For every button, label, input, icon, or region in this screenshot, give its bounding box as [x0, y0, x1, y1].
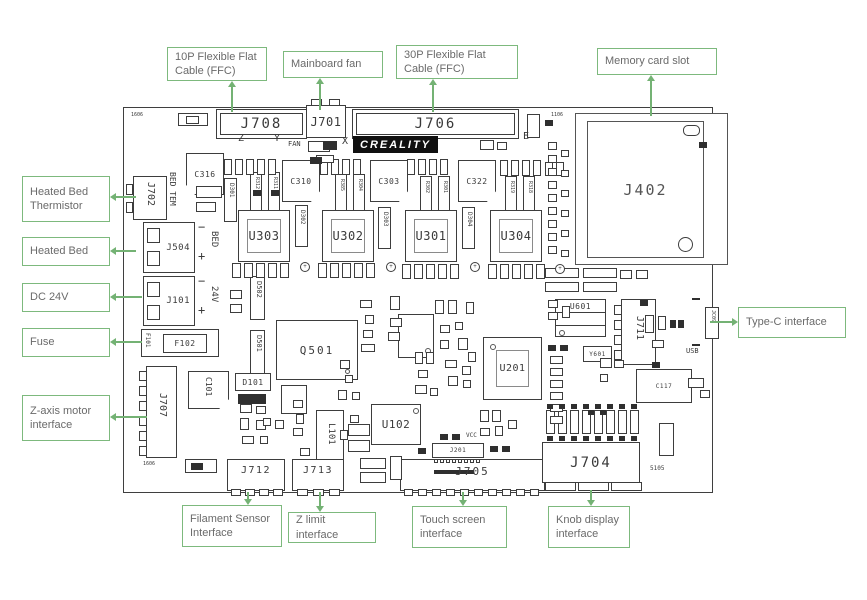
arrow-head: [587, 500, 595, 506]
callout-text: Heated Bed Thermistor: [30, 185, 88, 214]
connector-pad: [329, 99, 340, 106]
small-component: [244, 263, 253, 278]
connector-j708: J708: [216, 109, 307, 139]
arrow-line: [432, 84, 434, 112]
driver-u304: U304: [490, 210, 542, 262]
small-component: [260, 436, 268, 444]
small-component: [658, 316, 666, 330]
callout-text: 30P Flexible Flat Cable (FFC): [404, 48, 486, 77]
crystal-label: Y601: [584, 347, 611, 361]
connector-pad: [614, 335, 622, 345]
connector-pad: [614, 350, 622, 360]
resistor-label: R312: [254, 177, 260, 189]
connector-pad: [614, 320, 622, 330]
callout-text: Type-C interface: [746, 315, 827, 329]
small-component: [619, 436, 625, 441]
small-component: [561, 250, 569, 257]
small-component: [418, 159, 426, 175]
silk-plus: +: [198, 303, 205, 317]
chip-label: U102: [372, 405, 420, 444]
small-component: [390, 296, 400, 310]
small-component: [318, 263, 327, 278]
silk-ref-1606: 1606: [143, 461, 155, 467]
small-component: [365, 315, 374, 324]
small-component: [224, 159, 232, 175]
cap-label: C117: [637, 370, 691, 402]
small-component: [570, 410, 579, 434]
small-component: [438, 264, 447, 279]
small-component: [497, 142, 507, 150]
arrow-head: [244, 499, 252, 505]
small-component: [415, 385, 427, 394]
arrow-line: [650, 80, 652, 116]
connector-pad: [139, 386, 147, 396]
driver-u303: U303: [238, 210, 290, 262]
resistor-label: R301: [442, 181, 448, 193]
resistor-label: R311: [272, 177, 278, 189]
connector-j201: J201: [432, 443, 484, 458]
cap-c303: C303: [370, 160, 408, 202]
small-component: [191, 463, 203, 470]
small-component: [571, 404, 577, 409]
small-component: [235, 159, 243, 175]
connector-label: J712: [228, 460, 284, 490]
small-component: [508, 420, 517, 429]
small-component: [232, 263, 241, 278]
callout-text: Knob display interface: [556, 513, 619, 542]
connector-pad: [404, 489, 413, 496]
callout-text: DC 24V: [30, 290, 69, 304]
callout-text: Memory card slot: [605, 54, 689, 68]
small-component: [640, 300, 648, 306]
connector-j704: J704: [542, 442, 640, 483]
connector-label: J704: [543, 443, 639, 482]
small-component: [488, 264, 497, 279]
driver-u301: U301: [405, 210, 457, 262]
small-component: [263, 418, 271, 426]
small-component: [583, 436, 589, 441]
driver-label: U304: [491, 211, 541, 261]
diode-d502: D502: [250, 276, 265, 320]
connector-pad: [273, 489, 283, 496]
diode-d501: D501: [250, 330, 265, 374]
small-component: [466, 302, 474, 314]
connector-pad: [139, 446, 147, 456]
small-component: [490, 446, 498, 452]
small-component: [435, 300, 444, 314]
small-component: [588, 410, 594, 415]
cap-c101: C101: [188, 371, 229, 409]
cap-label: C303: [371, 161, 407, 201]
connector-pad: [139, 401, 147, 411]
small-component: [548, 194, 557, 202]
arrow-line: [710, 321, 733, 323]
small-component: [480, 140, 494, 150]
connector-pad: [516, 489, 525, 496]
connector-label: J706: [353, 110, 518, 138]
small-component: [511, 160, 519, 176]
resistor-label: R304: [357, 179, 363, 191]
small-component: [561, 150, 569, 157]
cap-label: C101: [204, 377, 213, 396]
small-component: [561, 170, 569, 177]
cap-label: C322: [459, 161, 495, 201]
small-component: [631, 404, 637, 409]
small-component: [468, 352, 476, 362]
small-component: [440, 159, 448, 175]
ic-u102: U102: [371, 404, 421, 445]
arrow-line: [115, 341, 142, 343]
callout-text: Touch screen interface: [420, 513, 485, 542]
callout-text: Filament Sensor Interface: [190, 512, 270, 541]
small-component: [550, 380, 563, 388]
small-component: [480, 428, 490, 436]
connector-label: J711: [634, 316, 645, 340]
tick-mark: [692, 344, 700, 346]
small-component: [548, 155, 557, 163]
connector-pad: [545, 482, 576, 491]
connector-j705: J705: [400, 459, 545, 491]
diode-label: D502: [255, 281, 263, 298]
connector-pad: [578, 482, 609, 491]
small-component: [550, 368, 563, 376]
small-component: [246, 159, 254, 175]
silk-24v: 24V: [209, 286, 219, 302]
callout-touch-screen: Touch screen interface: [412, 506, 507, 548]
small-component: [571, 436, 577, 441]
small-component: [407, 159, 415, 175]
small-component: [440, 340, 449, 349]
small-component: [636, 270, 648, 279]
small-component: [448, 376, 458, 386]
small-component: [360, 300, 372, 308]
small-component: [607, 404, 613, 409]
diagram-canvas: 10P Flexible Flat Cable (FFC) Mainboard …: [0, 0, 867, 600]
connector-label: J707: [157, 393, 168, 417]
tick-mark: [692, 298, 700, 300]
resistor-label: R302: [424, 181, 430, 193]
silk-plus: +: [198, 249, 205, 263]
small-component: [240, 418, 249, 430]
small-component: [338, 390, 347, 400]
callout-heated-bed-thermistor: Heated Bed Thermistor: [22, 176, 110, 222]
small-component: [230, 290, 242, 299]
silk-axis-z: Z: [238, 133, 244, 144]
small-component: [426, 264, 435, 279]
mosfet-q501: Q501: [276, 320, 358, 380]
small-component: [280, 263, 289, 278]
small-component: [186, 116, 199, 124]
small-component: [293, 428, 303, 436]
small-component: [230, 304, 242, 313]
small-component: [426, 352, 434, 364]
callout-heated-bed: Heated Bed: [22, 237, 110, 266]
small-component: [550, 416, 563, 424]
connector-label: J201: [433, 444, 483, 457]
small-component: [353, 159, 361, 175]
callout-text: 10P Flexible Flat Cable (FFC): [175, 50, 257, 79]
diode-label: D301: [228, 183, 235, 197]
driver-label: U303: [239, 211, 289, 261]
diode-label: D304: [466, 212, 473, 226]
connector-pad: [474, 489, 483, 496]
small-component: [548, 246, 557, 254]
small-component: [418, 448, 426, 454]
arrow-line: [319, 83, 321, 110]
connector-j701: J701: [306, 105, 346, 138]
small-component: [296, 414, 304, 424]
small-component: [559, 404, 565, 409]
small-component: [445, 360, 457, 368]
diode-label: D501: [255, 335, 263, 352]
resistor-r385: R385: [335, 174, 347, 214]
connector-pad: [329, 489, 340, 496]
small-component: [415, 352, 423, 364]
arrow-line: [115, 296, 142, 298]
connector-j707: J707: [146, 366, 177, 458]
connector-j713: J713: [292, 459, 344, 491]
silk-vcc: VCC: [466, 432, 477, 439]
small-component: [545, 282, 579, 292]
callout-mainboard-fan: Mainboard fan: [283, 51, 383, 78]
fuse-label: F101: [144, 333, 151, 347]
arrow-line: [231, 86, 233, 112]
small-component: [342, 263, 351, 278]
small-component: [607, 436, 613, 441]
small-component: [352, 392, 360, 400]
arrow-head: [429, 79, 437, 85]
small-component: [548, 142, 557, 150]
small-component: [630, 410, 639, 434]
memory-card-slot-j402: J402: [587, 121, 704, 258]
small-component: [502, 446, 510, 452]
connector-pad: [502, 489, 511, 496]
small-component: [560, 345, 568, 351]
small-component: [561, 230, 569, 237]
small-component: [463, 380, 471, 388]
small-component: [271, 190, 279, 196]
arrow-head: [110, 193, 116, 201]
small-component: [238, 394, 266, 404]
connector-label: J713: [293, 460, 343, 490]
arrow-head: [459, 500, 467, 506]
small-component: [363, 330, 373, 338]
small-component: [583, 404, 589, 409]
connector-label: JC09: [710, 310, 716, 322]
silk-ref-1106: 1106: [551, 112, 563, 118]
small-component: [631, 436, 637, 441]
small-component: [196, 186, 222, 198]
callout-type-c: Type-C interface: [738, 307, 846, 338]
silk-ref-5105: 5105: [650, 465, 664, 472]
small-component: [240, 404, 252, 413]
silk-bed: BED: [209, 231, 219, 247]
arrow-head: [316, 78, 324, 84]
small-component: [480, 410, 489, 422]
cap-c310: C310: [282, 160, 320, 202]
mcu-u201: U201: [483, 337, 542, 400]
diode-label: D302: [299, 210, 306, 224]
silk-usb: USB: [686, 347, 699, 355]
small-component: [548, 181, 557, 189]
connector-pad: [530, 489, 539, 496]
chip-label: Q501: [277, 321, 357, 379]
small-component: [361, 344, 375, 352]
connector-j101: J101: [143, 276, 195, 326]
small-component: [293, 400, 303, 408]
small-component: [545, 120, 553, 126]
small-component: [458, 338, 468, 350]
arrow-line: [115, 196, 136, 198]
small-component: [448, 300, 457, 314]
callout-text: Fuse: [30, 335, 54, 349]
small-component: [323, 141, 337, 150]
connector-j504: J504: [143, 222, 195, 273]
callout-z-limit: Z limit interface: [288, 512, 376, 543]
chip-label: U201: [484, 338, 541, 399]
cap-c322: C322: [458, 160, 496, 202]
small-component: [678, 320, 684, 328]
small-component: [533, 160, 541, 176]
callout-z-axis-motor: Z-axis motor interface: [22, 395, 110, 441]
small-component: [595, 404, 601, 409]
small-component: [548, 168, 557, 176]
small-component: [512, 264, 521, 279]
small-component: [492, 410, 501, 422]
small-component: [619, 404, 625, 409]
small-component: [462, 366, 471, 375]
creality-logo: CREALITY: [353, 136, 438, 153]
small-component: [440, 434, 448, 440]
small-component: [268, 159, 276, 175]
connector-j706: J706: [352, 109, 519, 139]
small-component: [257, 159, 265, 175]
small-component: [548, 345, 556, 351]
silk-bed-tem: BED TEM: [168, 172, 177, 206]
small-component: [548, 233, 557, 241]
small-component: [550, 392, 563, 400]
driver-u302: U302: [322, 210, 374, 262]
callout-memory-card-slot: Memory card slot: [597, 48, 717, 75]
small-component: [583, 282, 617, 292]
chip-label: U601: [556, 300, 605, 336]
connector-pad: [488, 489, 497, 496]
silk-ref-1606: 1606: [131, 112, 143, 118]
small-component: [342, 159, 350, 175]
cap-label: C310: [283, 161, 319, 201]
small-component: [614, 360, 624, 368]
driver-label: U302: [323, 211, 373, 261]
arrow-head: [732, 318, 738, 326]
callout-dc-24v: DC 24V: [22, 283, 110, 312]
test-point: +: [386, 262, 396, 272]
connector-j712: J712: [227, 459, 285, 491]
small-component: [275, 420, 284, 429]
connector-label: J402: [588, 122, 703, 257]
small-component: [548, 207, 557, 215]
small-component: [354, 263, 363, 278]
connector-label: J504: [144, 223, 194, 272]
silk-minus: −: [198, 220, 205, 234]
small-component: [452, 434, 460, 440]
connector-pad: [139, 431, 147, 441]
connector-pad: [139, 371, 147, 381]
callout-filament-sensor: Filament Sensor Interface: [182, 505, 282, 547]
test-point: +: [470, 262, 480, 272]
callout-text: Heated Bed: [30, 244, 88, 258]
resistor-label: R318: [527, 181, 533, 193]
connector-pad: [446, 489, 455, 496]
callout-ffc-10p: 10P Flexible Flat Cable (FFC): [167, 47, 267, 81]
driver-label: U301: [406, 211, 456, 261]
small-component: [536, 264, 545, 279]
connector-label: J701: [307, 106, 345, 137]
small-component: [522, 160, 530, 176]
silk-axis-e: E: [523, 131, 529, 142]
small-component: [390, 318, 402, 327]
fuse-label: F102: [164, 335, 206, 352]
connector-pad: [418, 489, 427, 496]
resistor-r304: R304: [353, 174, 365, 214]
small-component: [366, 263, 375, 278]
connector-label: J708: [217, 110, 306, 138]
small-component: [350, 415, 359, 423]
connector-pad: [126, 184, 133, 195]
ic-u601: U601: [555, 299, 606, 337]
arrow-head: [228, 81, 236, 87]
cap-c117: C117: [636, 369, 692, 403]
silk-axis-y: Y: [274, 133, 280, 144]
connector-pad: [432, 489, 441, 496]
small-component: [618, 410, 627, 434]
connector-label: J101: [144, 277, 194, 325]
small-component: [500, 264, 509, 279]
small-component: [595, 436, 601, 441]
small-component: [547, 436, 553, 441]
crystal-y601: Y601: [583, 346, 612, 362]
diode-d304: D304: [462, 207, 475, 249]
small-component: [659, 423, 674, 456]
small-component: [440, 325, 450, 333]
small-component: [500, 160, 508, 176]
test-point: +: [300, 262, 310, 272]
arrow-head: [110, 247, 116, 255]
small-component: [310, 157, 322, 164]
small-component: [340, 430, 348, 440]
logo-text: CREALITY: [360, 139, 431, 151]
test-point: +: [555, 264, 565, 274]
silk-axis-x: X: [342, 136, 348, 147]
small-component: [450, 264, 459, 279]
arrow-line: [319, 492, 321, 507]
silk-fan: FAN: [288, 140, 301, 148]
small-component: [330, 263, 339, 278]
arrow-head: [316, 506, 324, 512]
small-component: [256, 263, 265, 278]
arrow-line: [115, 416, 147, 418]
small-component: [652, 340, 664, 348]
small-component: [402, 264, 411, 279]
arrow-head: [647, 75, 655, 81]
connector-pad: [231, 489, 241, 496]
callout-fuse: Fuse: [22, 328, 110, 357]
silk-minus: −: [198, 274, 205, 288]
arrow-line: [115, 250, 136, 252]
callout-ffc-30p: 30P Flexible Flat Cable (FFC): [396, 45, 518, 79]
callout-knob-display: Knob display interface: [548, 506, 630, 548]
small-component: [360, 472, 386, 483]
small-component: [559, 436, 565, 441]
